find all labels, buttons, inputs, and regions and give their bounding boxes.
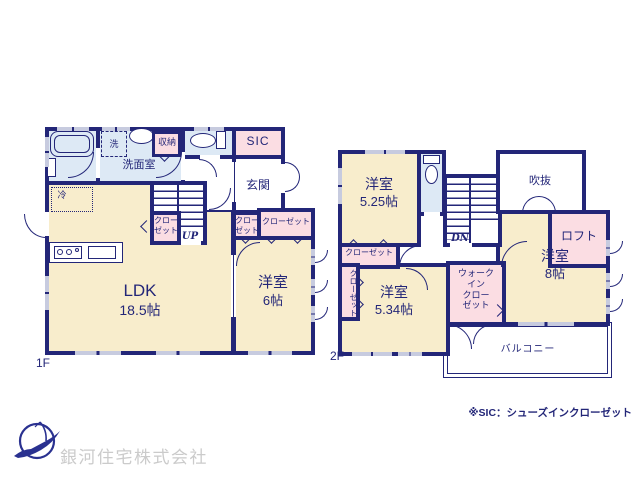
toilet-tank-icon (216, 131, 226, 149)
window (102, 127, 130, 131)
floorplan-canvas: 洗面室 洗 収納 SIC 玄関 冷 クローゼット クローゼット クローゼット U… (0, 0, 640, 480)
burner-icon (57, 249, 63, 255)
sink-icon (129, 128, 154, 144)
void-label: 吹抜 (517, 175, 563, 188)
bird-logo-icon (10, 418, 64, 466)
toilet-bowl-icon (190, 133, 216, 148)
storage-label: 収納 (152, 137, 182, 148)
window (365, 150, 405, 154)
bedroom525-size: 5.25帖 (340, 194, 418, 210)
stair-steps (447, 178, 469, 240)
floor2-label: 2F (330, 349, 360, 363)
window (75, 351, 121, 355)
sliding-door-line (233, 255, 234, 317)
bedroom525-name: 洋室 (340, 176, 418, 193)
bedroom8-name: 洋室 (513, 248, 597, 265)
bedroom534-size: 5.34帖 (350, 302, 438, 318)
casement-window-arc (610, 274, 623, 287)
window (398, 352, 422, 356)
washroom-label: 洗面室 (103, 159, 175, 172)
wall-line (207, 210, 233, 212)
balcony-label: バルコニー (490, 344, 566, 356)
bedroom8-size: 8帖 (513, 266, 597, 282)
bedroom6-name: 洋室 (237, 274, 309, 292)
stairs-up-label: UP (176, 231, 204, 243)
window (248, 351, 292, 355)
toilet-tank-icon (423, 155, 440, 164)
door-opening (200, 155, 220, 159)
casement-window-arc (315, 307, 328, 320)
entrance-door-arc (285, 177, 300, 192)
loft-label: ロフト (550, 229, 608, 243)
casement-window-arc (315, 280, 328, 293)
company-name: 銀河住宅株式会社 (60, 448, 280, 468)
closet-label: クローゼット (341, 267, 357, 319)
entrance-door-arc (285, 162, 300, 177)
window (194, 127, 224, 131)
door-opening (96, 148, 100, 178)
closet-label: クローゼット (258, 217, 314, 227)
sic-label: SIC (236, 134, 280, 148)
casement-window-arc (315, 250, 328, 263)
stair-steps (154, 185, 177, 211)
walk-in-closet-label: ウォーク イン クロー ゼット (450, 268, 502, 311)
window (57, 127, 89, 131)
floor1-label: 1F (36, 356, 66, 370)
casement-window-arc (610, 299, 623, 312)
closet-label: クローゼット (233, 216, 261, 235)
closet-label: クローゼット (341, 248, 397, 258)
stairs-dn-label: DN (445, 233, 475, 245)
window (156, 351, 200, 355)
laundry-label: 洗 (101, 139, 127, 150)
bedroom534-name: 洋室 (350, 284, 438, 301)
entrance-step-line (234, 162, 235, 202)
stair-steps (179, 185, 203, 231)
burner-icon (66, 249, 72, 255)
kitchen-sink-icon (88, 246, 116, 259)
ldk-name: LDK (88, 281, 192, 301)
stair-steps (471, 178, 498, 222)
burner-icon (75, 248, 79, 252)
bedroom6-size: 6帖 (237, 293, 309, 309)
door-opening (424, 212, 440, 216)
entrance-label: 玄関 (237, 178, 279, 192)
window (518, 322, 574, 326)
window (45, 137, 49, 167)
casement-window-arc (610, 241, 623, 254)
door-arc (24, 214, 46, 238)
ldk-size: 18.5帖 (88, 302, 192, 319)
company-logo (10, 418, 64, 466)
window (45, 276, 49, 310)
sic-note: ※SIC：シューズインクローゼット (420, 407, 632, 420)
fridge-label: 冷 (53, 190, 71, 201)
toilet-bowl-icon (425, 165, 438, 184)
